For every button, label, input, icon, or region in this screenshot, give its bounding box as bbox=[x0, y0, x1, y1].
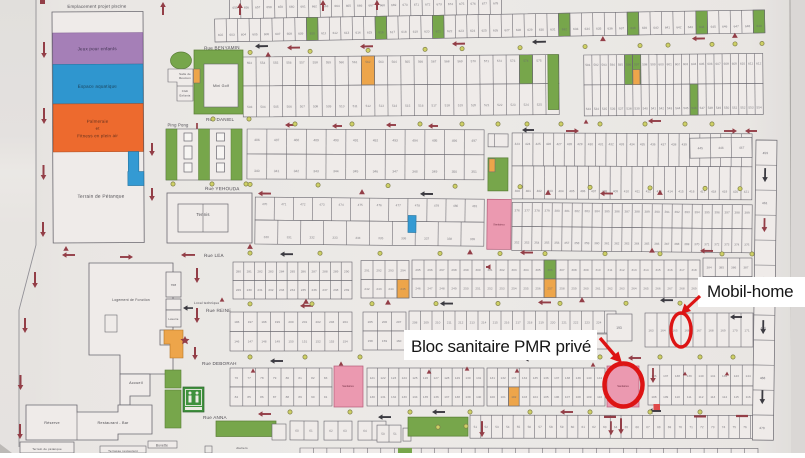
svg-text:Mobil-home: Mobil-home bbox=[707, 282, 793, 301]
svg-text:Bloc sanitaire PMR privé: Bloc sanitaire PMR privé bbox=[411, 337, 591, 356]
